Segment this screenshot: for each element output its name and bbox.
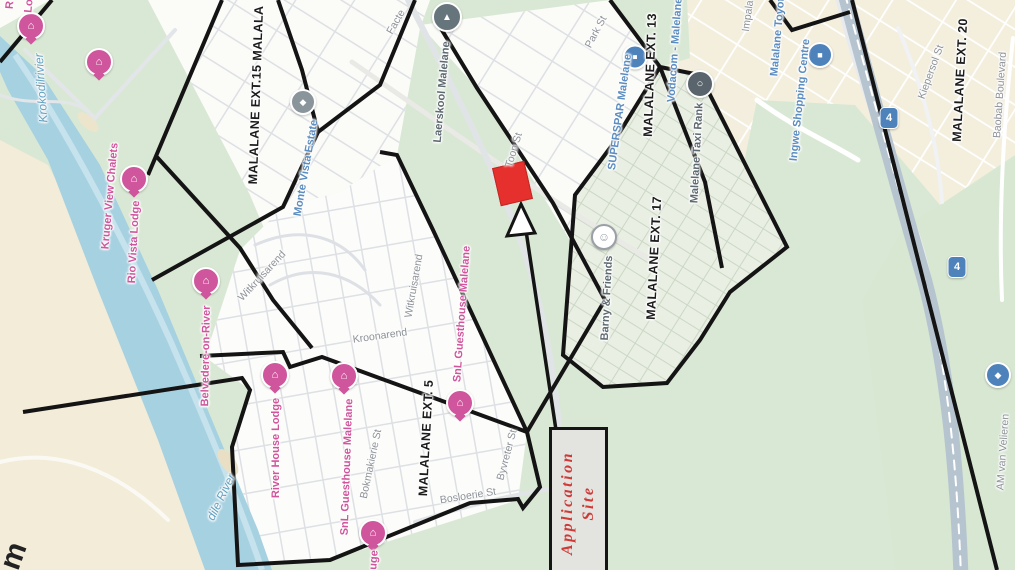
application-site-callout: Application Site [549,427,608,570]
map-terrain [0,0,1015,570]
application-site-label-line2: Site [579,418,600,570]
locality-map: Application Site ⌂⌂⌂⌂⌂⌂⌂⌂▲◆■■○☺44◆ MALAL… [0,0,1015,570]
application-site-label-line1: Application [558,418,579,570]
